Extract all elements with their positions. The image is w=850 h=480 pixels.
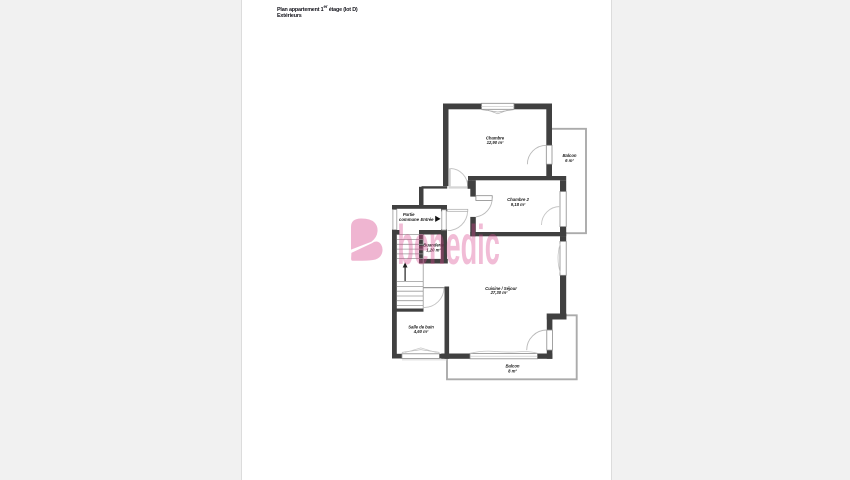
svg-text:27,30 m²: 27,30 m² xyxy=(490,290,508,295)
svg-text:9,18 m²: 9,18 m² xyxy=(511,202,526,207)
svg-text:benedic: benedic xyxy=(397,215,500,277)
svg-text:12,90 m²: 12,90 m² xyxy=(487,140,504,145)
svg-text:4,60 m²: 4,60 m² xyxy=(413,329,429,334)
svg-text:8 m²: 8 m² xyxy=(508,368,517,373)
svg-text:6 m²: 6 m² xyxy=(565,158,574,163)
